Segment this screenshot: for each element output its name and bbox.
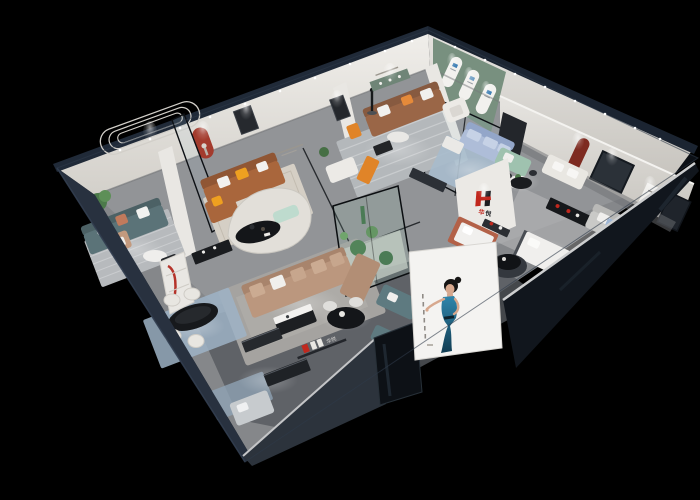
spotlight: [149, 138, 152, 141]
black-round-table: [495, 254, 521, 270]
cactus-plant: [319, 147, 329, 157]
table: [510, 177, 532, 189]
spotlight: [574, 100, 577, 103]
showroom-render: 华 悦: [0, 0, 700, 500]
spotlight: [604, 113, 607, 116]
wall-light-glow: [196, 121, 210, 143]
caption-signature: [427, 344, 433, 346]
spotlight: [179, 127, 182, 130]
wall-light-glow: [383, 63, 397, 85]
caption-mark: [424, 326, 426, 331]
sculpture-base: [367, 111, 377, 115]
spotlight: [314, 77, 317, 80]
foliage: [99, 190, 111, 202]
white-chair: [188, 335, 204, 348]
caption-mark: [423, 302, 425, 307]
spotlight: [384, 50, 387, 53]
wall-light-glow: [572, 132, 584, 152]
wall-light-glow: [447, 53, 457, 71]
table-deco: [502, 257, 506, 261]
round-coffee-table: [387, 132, 409, 143]
wall-light-glow: [644, 176, 656, 196]
caption-mark: [425, 334, 427, 339]
wall-light-glow: [478, 183, 490, 201]
spotlight: [484, 59, 487, 62]
spotlight: [454, 46, 457, 49]
wall-light-glow: [240, 102, 252, 122]
wall-light-glow: [331, 90, 343, 110]
face: [446, 284, 455, 294]
spotlight: [349, 63, 352, 66]
spotlight: [659, 138, 662, 141]
spotlight: [411, 40, 414, 43]
white-chair: [184, 288, 200, 300]
caption-mark: [424, 318, 426, 323]
caption-mark: [423, 310, 425, 315]
spotlight: [634, 127, 637, 130]
white-chair: [323, 301, 337, 311]
caption-mark: [422, 294, 424, 299]
spotlight: [279, 90, 282, 93]
wall-light-glow: [606, 148, 618, 168]
wall-light-glow: [464, 67, 474, 85]
vase: [261, 227, 265, 231]
chair: [529, 170, 537, 176]
vase: [250, 225, 255, 230]
left-hand: [425, 308, 428, 311]
wall-light-glow: [481, 81, 491, 99]
table-deco: [339, 311, 345, 317]
spotlight: [514, 73, 517, 76]
spotlight: [544, 86, 547, 89]
spotlight: [209, 116, 212, 119]
white-chair: [349, 297, 363, 307]
spotlight: [244, 103, 247, 106]
white-chair: [164, 294, 180, 306]
spotlight: [119, 149, 122, 152]
